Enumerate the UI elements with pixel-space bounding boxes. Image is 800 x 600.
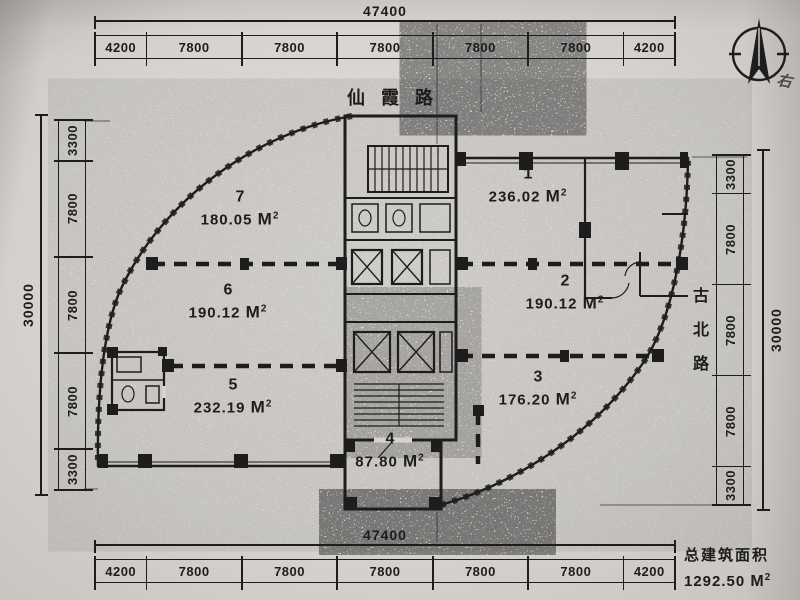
dim-segment-value: 3300 (723, 470, 738, 501)
street-right-char: 古 (693, 282, 709, 306)
dim-segment: 7800 (717, 194, 743, 285)
dim-segment: 7800 (337, 36, 432, 58)
room-number: 5 (194, 377, 273, 395)
dim-segment-value: 7800 (560, 40, 591, 55)
room-number: 7 (201, 189, 280, 207)
room-label-6: 6190.12 M2 (189, 282, 268, 323)
room-number: 2 (526, 273, 605, 291)
dim-segment: 7800 (242, 560, 337, 582)
total-dimension: 30000 (768, 308, 784, 352)
total-dimension: 47400 (363, 3, 407, 19)
room-area: 232.19 M2 (194, 397, 273, 417)
dim-segment: 7800 (528, 560, 623, 582)
room-area: 190.12 M2 (526, 293, 605, 313)
street-right-char: 路 (693, 350, 709, 374)
dim-segment-value: 7800 (370, 40, 401, 55)
dimension-chain-right: 33007800780078003300 30000 (716, 155, 766, 505)
dimension-chain-top: 47400 4200780078007800780078004200 (95, 20, 675, 59)
dim-segment-value: 4200 (634, 40, 665, 55)
total-dimension: 30000 (20, 283, 36, 327)
overall-dimension-line: 47400 (95, 544, 675, 546)
room-area: 87.80 M2 (355, 451, 424, 471)
dim-segment-value: 7800 (723, 224, 738, 255)
room-number: 1 (489, 166, 568, 184)
dim-segment-value: 7800 (65, 386, 80, 417)
room-label-1: 1236.02 M2 (489, 166, 568, 207)
dim-segment: 7800 (146, 36, 241, 58)
dim-segment-value: 3300 (723, 159, 738, 190)
scanned-floor-plan: 右 仙霞路 古 北 路 47400 4200780078007800780078… (0, 0, 800, 600)
room-label-4: 487.80 M2 (355, 431, 424, 472)
room-label-5: 5232.19 M2 (194, 377, 273, 418)
overall-dimension-line: 47400 (95, 20, 675, 22)
dim-segment-value: 7800 (65, 193, 80, 224)
dim-segment-value: 3300 (65, 454, 80, 485)
dim-segment-value: 7800 (465, 40, 496, 55)
dim-segment: 7800 (337, 560, 432, 582)
dim-segment: 7800 (433, 36, 528, 58)
dimension-chain-bottom: 47400 4200780078007800780078004200 (95, 544, 675, 583)
dim-segment: 7800 (59, 161, 85, 257)
room-area: 180.05 M2 (201, 209, 280, 229)
room-number: 3 (499, 369, 578, 387)
dimension-band: 4200780078007800780078004200 (95, 559, 675, 583)
room-area: 236.02 M2 (489, 186, 568, 206)
dim-segment-value: 3300 (65, 125, 80, 156)
dim-segment: 3300 (59, 449, 85, 490)
dim-segment: 7800 (717, 285, 743, 376)
dim-segment-value: 4200 (105, 40, 136, 55)
overall-dimension-line (40, 115, 42, 495)
room-label-3: 3176.20 M2 (499, 369, 578, 410)
dim-segment: 4200 (624, 560, 675, 582)
dim-segment: 7800 (242, 36, 337, 58)
street-right-char: 北 (693, 316, 709, 340)
street-name-top: 仙霞路 (347, 84, 449, 110)
dimension-chain-left: 30000 33007800780078003300 (40, 120, 86, 490)
dim-segment: 7800 (433, 560, 528, 582)
dim-segment-value: 7800 (179, 40, 210, 55)
dim-segment: 7800 (146, 560, 241, 582)
dim-segment-value: 4200 (105, 564, 136, 579)
dim-segment: 3300 (717, 467, 743, 506)
dim-segment: 7800 (59, 353, 85, 449)
total-area-label: 总建筑面积 (684, 544, 771, 565)
dim-segment-value: 7800 (723, 406, 738, 437)
street-name-right: 古 北 路 (693, 282, 709, 374)
room-label-7: 7180.05 M2 (201, 189, 280, 230)
room-label-2: 2190.12 M2 (526, 273, 605, 314)
dim-segment-value: 7800 (65, 290, 80, 321)
dim-segment-value: 7800 (723, 315, 738, 346)
dim-segment: 3300 (717, 155, 743, 194)
dim-segment-value: 7800 (274, 40, 305, 55)
dim-segment-value: 7800 (560, 564, 591, 579)
total-area-summary: 总建筑面积 1292.50 M2 (684, 544, 771, 591)
total-area-value: 1292.50 M2 (684, 572, 771, 591)
dim-segment-value: 4200 (634, 564, 665, 579)
overall-dimension-line (762, 150, 764, 510)
dim-segment: 7800 (528, 36, 623, 58)
dim-segment: 4200 (95, 560, 146, 582)
dim-segment-value: 7800 (179, 564, 210, 579)
dim-segment-value: 7800 (274, 564, 305, 579)
room-area: 190.12 M2 (189, 302, 268, 322)
total-dimension: 47400 (363, 527, 407, 543)
dimension-band: 4200780078007800780078004200 (95, 35, 675, 59)
dim-segment: 4200 (95, 36, 146, 58)
room-number: 4 (355, 431, 424, 449)
room-number: 6 (189, 282, 268, 300)
dim-segment: 7800 (717, 376, 743, 467)
dim-segment-value: 7800 (465, 564, 496, 579)
dimension-band: 33007800780078003300 (716, 155, 744, 505)
room-area: 176.20 M2 (499, 389, 578, 409)
dim-segment: 7800 (59, 257, 85, 353)
dim-segment: 3300 (59, 120, 85, 161)
dimension-band: 33007800780078003300 (58, 120, 86, 490)
dim-segment: 4200 (624, 36, 675, 58)
dim-segment-value: 7800 (370, 564, 401, 579)
